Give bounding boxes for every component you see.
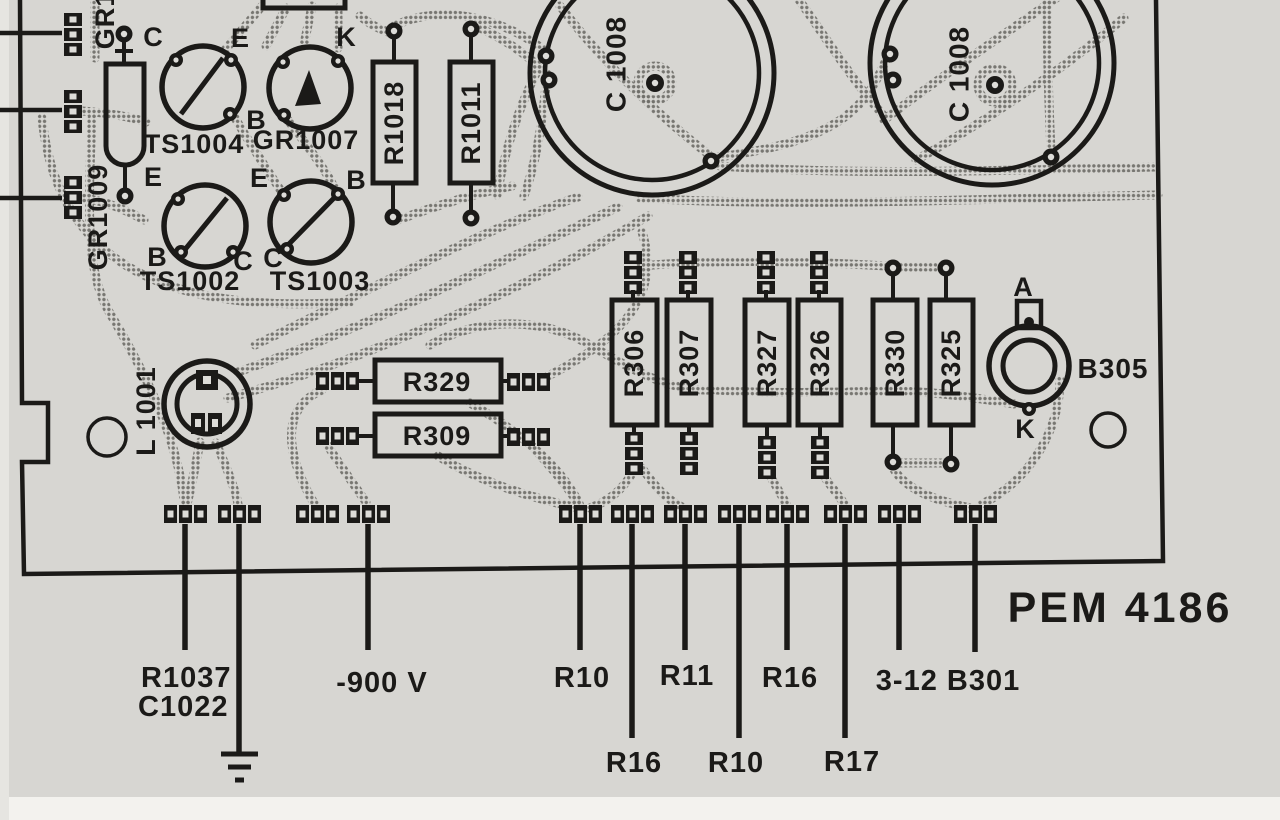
component-label: R330 — [880, 329, 910, 398]
pin-label-e: E — [231, 23, 249, 53]
component-label: C 1008 — [601, 16, 632, 112]
component-label: R325 — [936, 329, 966, 398]
component-label-partial: GR1 — [90, 0, 120, 49]
pin-label-a: A — [1013, 272, 1033, 302]
pcb-layout-scan: GR1009 GR1 C E B TS1004 K GR1007 E B C T… — [0, 0, 1280, 820]
component-label: GR1009 — [83, 164, 113, 271]
component-label: R306 — [619, 329, 649, 398]
callout-r16-b: R16 — [606, 747, 662, 779]
component-label: R309 — [403, 421, 472, 451]
callout-r17: R17 — [824, 746, 880, 778]
component-label: R307 — [674, 329, 704, 398]
paper-left-margin — [0, 0, 9, 820]
callout-b301: 3-12 B301 — [876, 665, 1020, 697]
pin-label-c: C — [143, 22, 163, 52]
callout-r10-a: R10 — [554, 662, 610, 694]
callout-c1022: C1022 — [138, 691, 228, 723]
part-number: PEM 4186 — [1008, 584, 1233, 632]
component-label: TS1003 — [270, 266, 371, 296]
component-label: R1018 — [379, 81, 409, 166]
callout-r16-a: R16 — [762, 662, 818, 694]
pin-label-k: K — [336, 22, 356, 52]
pin-label-e: E — [144, 162, 162, 192]
component-label: R327 — [752, 329, 782, 398]
component-label: C 1008 — [944, 26, 975, 122]
component-label: R1011 — [456, 81, 486, 164]
pin-label-b: B — [346, 165, 366, 195]
callout-r11: R11 — [660, 660, 715, 692]
pcb-layout-diagram: GR1009 GR1 C E B TS1004 K GR1007 E B C T… — [0, 0, 1280, 820]
paper-bottom-margin — [0, 797, 1280, 820]
callout-r1037: R1037 — [141, 662, 231, 694]
component-label: TS1004 — [144, 129, 245, 159]
component-label: GR1007 — [253, 125, 360, 155]
component-label: L 1001 — [131, 366, 161, 456]
component-label: R326 — [805, 329, 835, 398]
callout-minus-900v: -900 V — [336, 667, 427, 699]
callout-r10-b: R10 — [708, 747, 764, 779]
component-label: TS1002 — [140, 266, 241, 296]
pin-label-e: E — [250, 163, 268, 193]
pin-label-k: K — [1015, 414, 1035, 444]
component-label: B305 — [1078, 353, 1149, 384]
component-label: R329 — [403, 367, 472, 397]
